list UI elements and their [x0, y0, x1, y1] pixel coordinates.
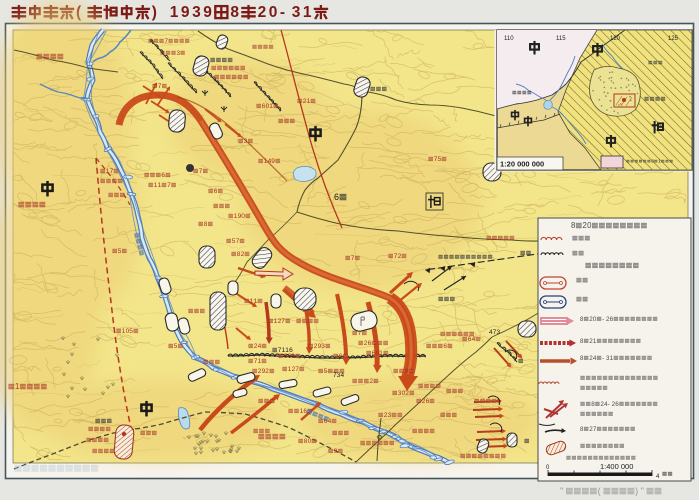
svg-text:7: 7	[158, 83, 162, 90]
svg-text:8: 8	[580, 426, 584, 433]
svg-text:3: 3	[497, 329, 501, 336]
svg-text:0: 0	[269, 4, 278, 21]
svg-text:0: 0	[593, 316, 597, 323]
svg-text:-: -	[608, 401, 610, 408]
svg-text:): )	[635, 486, 638, 496]
svg-text:3: 3	[388, 412, 392, 419]
svg-text:1: 1	[170, 4, 179, 21]
svg-text:1: 1	[593, 338, 597, 345]
svg-text:6: 6	[289, 347, 293, 354]
svg-text:8: 8	[651, 159, 654, 164]
svg-text:6: 6	[214, 188, 218, 195]
svg-text:9: 9	[334, 448, 338, 455]
svg-text:1: 1	[658, 159, 661, 164]
svg-text:8: 8	[204, 221, 208, 228]
svg-text:": "	[641, 486, 644, 496]
svg-text:4: 4	[472, 336, 476, 343]
svg-text:6: 6	[443, 343, 447, 350]
svg-text:8: 8	[591, 401, 595, 408]
svg-text:8: 8	[230, 4, 239, 21]
svg-text:0: 0	[308, 438, 312, 445]
svg-text:7: 7	[358, 330, 362, 337]
svg-text:6: 6	[426, 398, 430, 405]
svg-text:7: 7	[351, 255, 355, 262]
svg-text:1: 1	[379, 350, 383, 357]
svg-text:5: 5	[118, 248, 122, 255]
svg-text:": "	[560, 486, 563, 496]
svg-text:7: 7	[295, 366, 299, 373]
svg-text:2: 2	[258, 4, 267, 21]
svg-text:120: 120	[610, 36, 621, 42]
svg-text:6: 6	[161, 172, 165, 179]
svg-text:3: 3	[177, 50, 181, 57]
svg-text:2: 2	[241, 251, 245, 258]
svg-text:6: 6	[615, 401, 619, 408]
svg-text:5: 5	[129, 328, 133, 335]
svg-text:): )	[152, 4, 157, 21]
svg-text:6: 6	[339, 353, 343, 360]
svg-text:7: 7	[236, 238, 240, 245]
svg-text:8: 8	[571, 221, 575, 230]
svg-text:2: 2	[265, 368, 269, 375]
svg-text:8: 8	[580, 316, 584, 323]
svg-text:7: 7	[167, 182, 171, 189]
svg-text:9: 9	[271, 158, 275, 165]
svg-text:1: 1	[269, 103, 273, 110]
svg-text:0: 0	[587, 221, 592, 230]
svg-text:5: 5	[174, 343, 178, 350]
svg-text:7: 7	[110, 168, 114, 175]
svg-text:-: -	[602, 316, 604, 323]
svg-text:7: 7	[165, 38, 169, 45]
svg-text:4: 4	[593, 355, 597, 362]
svg-text:(: (	[598, 486, 601, 496]
svg-text:7: 7	[593, 426, 597, 433]
svg-text:3: 3	[292, 4, 301, 21]
svg-text:1: 1	[303, 4, 312, 21]
svg-text:6: 6	[303, 408, 307, 415]
svg-text:1: 1	[307, 98, 311, 105]
svg-text:7: 7	[199, 168, 203, 175]
svg-text:2: 2	[405, 390, 409, 397]
svg-text:3: 3	[321, 343, 325, 350]
svg-text:115: 115	[556, 36, 566, 42]
svg-text:7: 7	[281, 318, 285, 325]
svg-text:9: 9	[181, 4, 190, 21]
svg-text:-: -	[280, 4, 285, 21]
svg-text:1: 1	[158, 182, 162, 189]
svg-text:9: 9	[405, 368, 409, 375]
svg-text:110: 110	[504, 36, 514, 42]
svg-text:1: 1	[254, 298, 258, 305]
svg-text:1:20 000 000: 1:20 000 000	[500, 160, 544, 169]
svg-text:1: 1	[258, 358, 262, 365]
svg-text:1: 1	[15, 382, 19, 391]
svg-text:5: 5	[324, 368, 328, 375]
svg-text:125: 125	[668, 36, 679, 42]
svg-text:-: -	[602, 355, 604, 362]
svg-text:5: 5	[438, 156, 442, 163]
svg-text:2: 2	[398, 253, 402, 260]
svg-text:2: 2	[369, 378, 373, 385]
svg-text:6: 6	[368, 340, 372, 347]
svg-text:4: 4	[341, 372, 345, 379]
svg-text:0: 0	[241, 213, 245, 220]
svg-text:8: 8	[580, 355, 584, 362]
svg-text:1: 1	[610, 355, 614, 362]
svg-text:6: 6	[610, 316, 614, 323]
svg-text:3: 3	[244, 138, 248, 145]
svg-text:3: 3	[192, 4, 201, 21]
svg-text:6: 6	[334, 192, 339, 202]
svg-text:8: 8	[580, 338, 584, 345]
svg-text:9: 9	[203, 4, 212, 21]
svg-text:4: 4	[258, 343, 262, 350]
svg-text:3: 3	[291, 353, 295, 360]
svg-text:1:400 000: 1:400 000	[600, 462, 633, 471]
